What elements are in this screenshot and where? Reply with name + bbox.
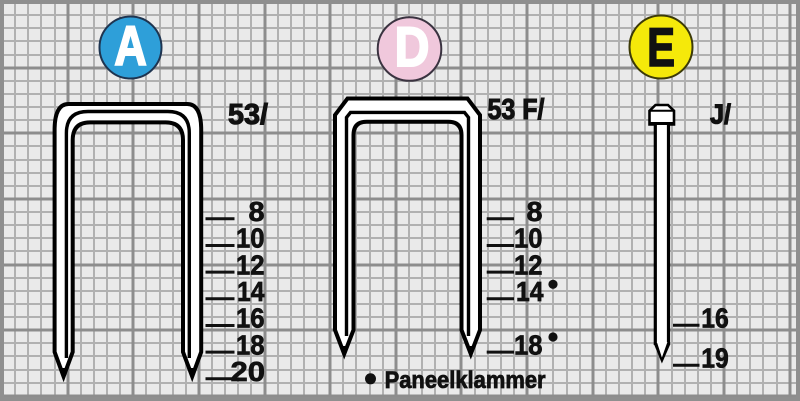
svg-text:J/: J/ — [710, 99, 731, 130]
svg-text:18: 18 — [514, 329, 543, 360]
svg-text:20: 20 — [231, 356, 266, 387]
svg-text:16: 16 — [701, 303, 729, 334]
svg-text:19: 19 — [701, 343, 729, 374]
svg-text:53 F/: 53 F/ — [488, 94, 545, 126]
svg-text:Paneelklammer: Paneelklammer — [385, 367, 546, 394]
svg-text:53/: 53/ — [228, 99, 268, 131]
svg-text:14: 14 — [516, 276, 544, 307]
svg-text:D: D — [395, 17, 430, 79]
svg-text:A: A — [114, 14, 146, 77]
svg-text:E: E — [647, 18, 675, 79]
